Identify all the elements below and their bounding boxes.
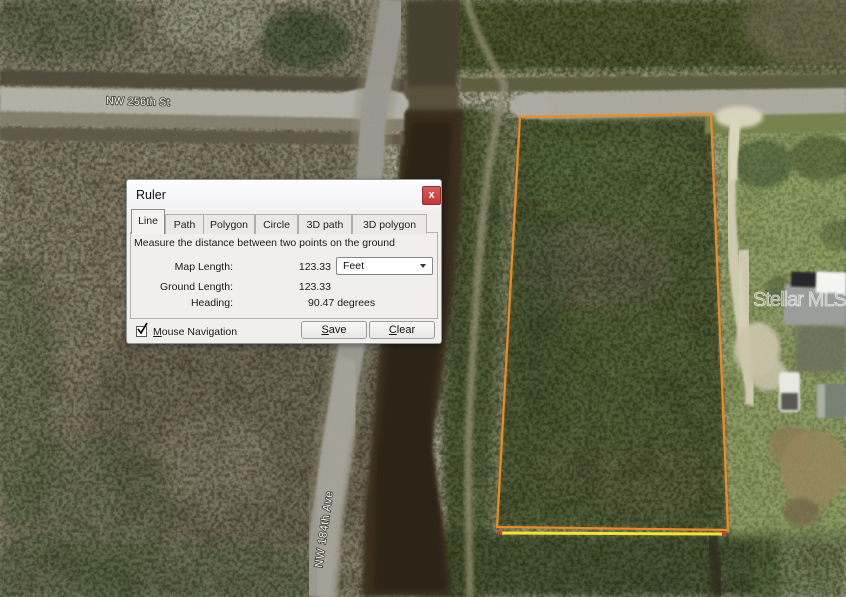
svg-text:NW 256th St: NW 256th St [106,95,170,109]
svg-text:Stellar MLS: Stellar MLS [753,289,846,311]
